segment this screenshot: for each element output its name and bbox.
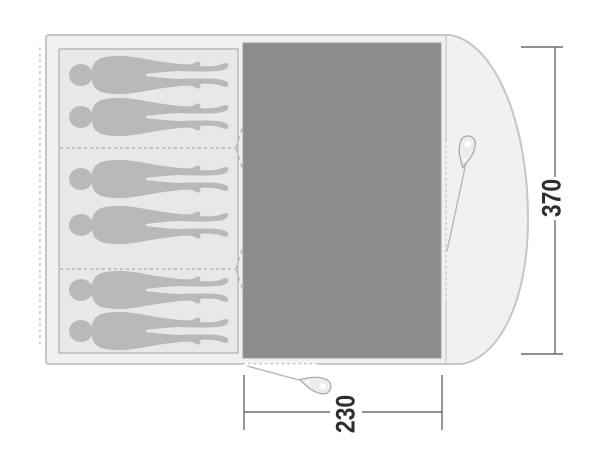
floorplan-canvas: 370 230: [0, 0, 600, 461]
living-area: [243, 43, 441, 358]
dimension-depth-label: 230: [331, 395, 361, 433]
guy-rope: [247, 366, 299, 380]
dimension-width-label: 370: [537, 179, 567, 217]
sleeping-area: [59, 49, 238, 353]
tent-floorplan-diagram: 370 230: [0, 0, 600, 461]
tent-peg-icon: [297, 372, 332, 396]
